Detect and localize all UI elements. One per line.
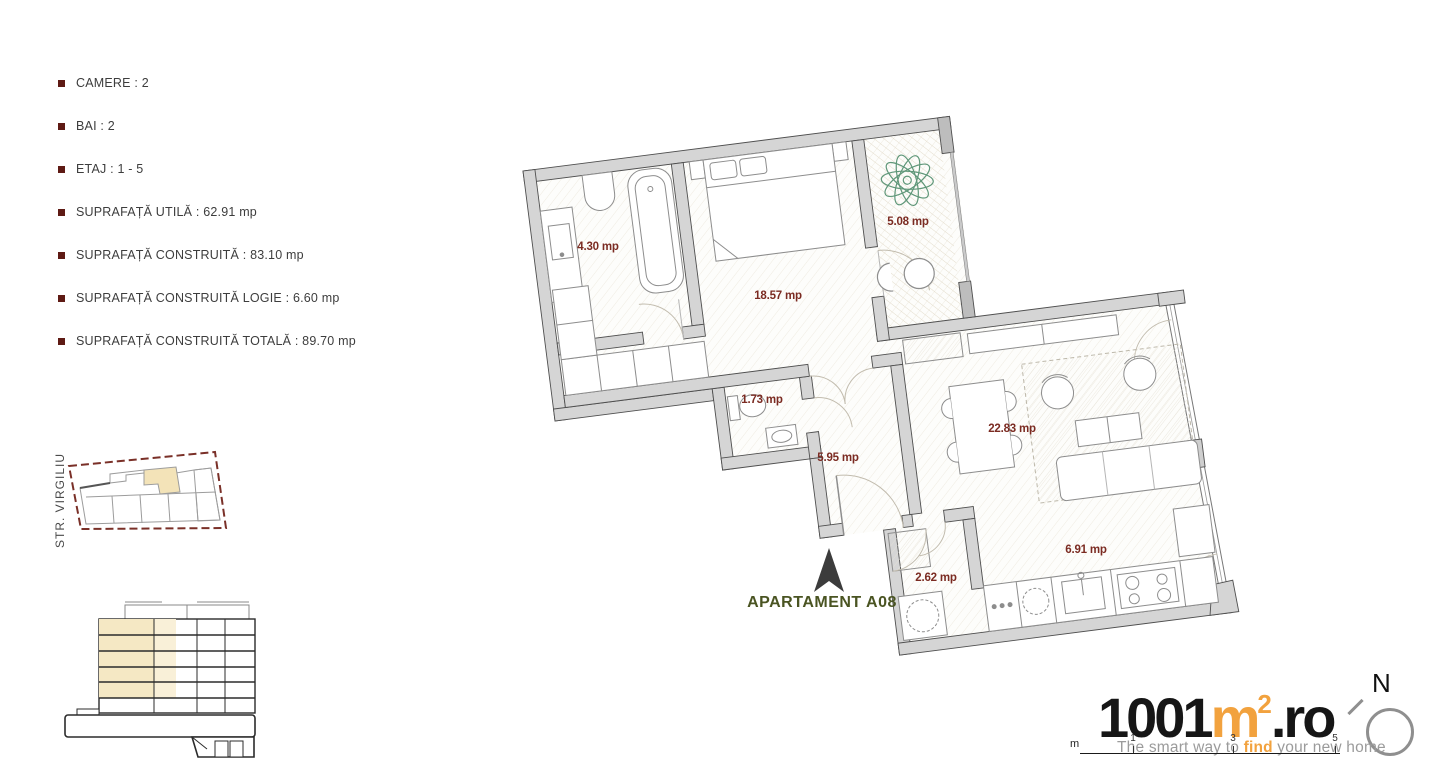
floorplan-page: { "specs": { "items": [ "CAMERE : 2", "B…: [0, 0, 1431, 777]
scalebar-mark-5: 5: [1332, 733, 1338, 744]
scalebar-tick: [1133, 746, 1134, 753]
spec-item-camere: CAMERE : 2: [58, 76, 356, 90]
room-label-living: 22.83 mp: [988, 423, 1036, 435]
section-ground-basement: [65, 709, 255, 757]
fridge-icon: [1173, 505, 1215, 557]
pillow: [739, 156, 767, 176]
wc-sink: [766, 424, 798, 448]
spec-text: SUPRAFAȚĂ CONSTRUITĂ : 83.10 mp: [76, 248, 304, 262]
spec-item-suprafata-utila: SUPRAFAȚĂ UTILĂ : 62.91 mp: [58, 205, 356, 219]
nightstand-right: [832, 142, 848, 162]
spec-item-bai: BAI : 2: [58, 119, 356, 133]
spec-text: SUPRAFAȚĂ UTILĂ : 62.91 mp: [76, 205, 257, 219]
bullet-icon: [58, 123, 65, 130]
room-label-hol: 5.95 mp: [817, 452, 858, 464]
bullet-icon: [58, 295, 65, 302]
logo-1001m2ro: 1001m2.ro: [1098, 672, 1333, 736]
bullet-icon: [58, 338, 65, 345]
wall-bath-bottom-b: [682, 324, 705, 339]
logo-exponent: 2: [1257, 689, 1270, 719]
room-label-dormitor: 18.57 mp: [754, 290, 802, 302]
section-floors: [99, 619, 255, 713]
spec-text: SUPRAFAȚĂ CONSTRUITĂ TOTALĂ : 89.70 mp: [76, 334, 356, 348]
bullet-icon: [58, 252, 65, 259]
spec-list: CAMERE : 2 BAI : 2 ETAJ : 1 - 5 SUPRAFAȚ…: [58, 76, 356, 348]
magnifier-handle: [1347, 699, 1363, 715]
scalebar-tick: [1233, 746, 1234, 753]
wall-wc-right-a: [799, 376, 814, 399]
bullet-icon: [58, 80, 65, 87]
bullet-icon: [58, 209, 65, 216]
room-label-baie2: 2.62 mp: [915, 572, 956, 584]
scalebar-unit: m: [1070, 738, 1079, 750]
building-section: [57, 595, 277, 760]
room-label-baie: 4.30 mp: [577, 241, 618, 253]
logo-tagline: The smart way to find your new home: [1117, 739, 1386, 757]
scalebar-mark-3: 3: [1230, 733, 1236, 744]
section-roof: [125, 602, 249, 619]
spec-text: ETAJ : 1 - 5: [76, 162, 143, 176]
spec-text: SUPRAFAȚĂ CONSTRUITĂ LOGIE : 6.60 mp: [76, 291, 340, 305]
apartment-title: APARTAMENT A08: [747, 594, 897, 612]
room-label-logie: 5.08 mp: [887, 216, 928, 228]
room-label-debara: 1.73 mp: [741, 394, 782, 406]
scalebar-line: [1080, 753, 1340, 754]
scalebar-mark-1: 1: [1130, 733, 1136, 744]
spec-item-etaj: ETAJ : 1 - 5: [58, 162, 356, 176]
north-indicator: N: [1372, 668, 1391, 699]
spec-text: BAI : 2: [76, 119, 115, 133]
floor-plan-drawing: [480, 95, 1260, 680]
rotated-plan-group: [523, 95, 1239, 680]
spec-item-suprafata-totala: SUPRAFAȚĂ CONSTRUITĂ TOTALĂ : 89.70 mp: [58, 334, 356, 348]
washer-box: [898, 591, 947, 640]
room-label-bucatarie: 6.91 mp: [1065, 544, 1106, 556]
spec-item-suprafata-construita: SUPRAFAȚĂ CONSTRUITĂ : 83.10 mp: [58, 248, 356, 262]
nightstand-left: [689, 160, 705, 180]
spec-item-suprafata-logie: SUPRAFAȚĂ CONSTRUITĂ LOGIE : 6.60 mp: [58, 291, 356, 305]
site-plan-map: [48, 440, 238, 555]
scalebar-tick: [1335, 746, 1336, 753]
spec-text: CAMERE : 2: [76, 76, 149, 90]
pillow: [710, 160, 738, 180]
bullet-icon: [58, 166, 65, 173]
stove-icon: [1117, 567, 1179, 608]
north-arrow-icon: [814, 548, 844, 592]
wall-hall-bottom-a: [819, 523, 844, 538]
